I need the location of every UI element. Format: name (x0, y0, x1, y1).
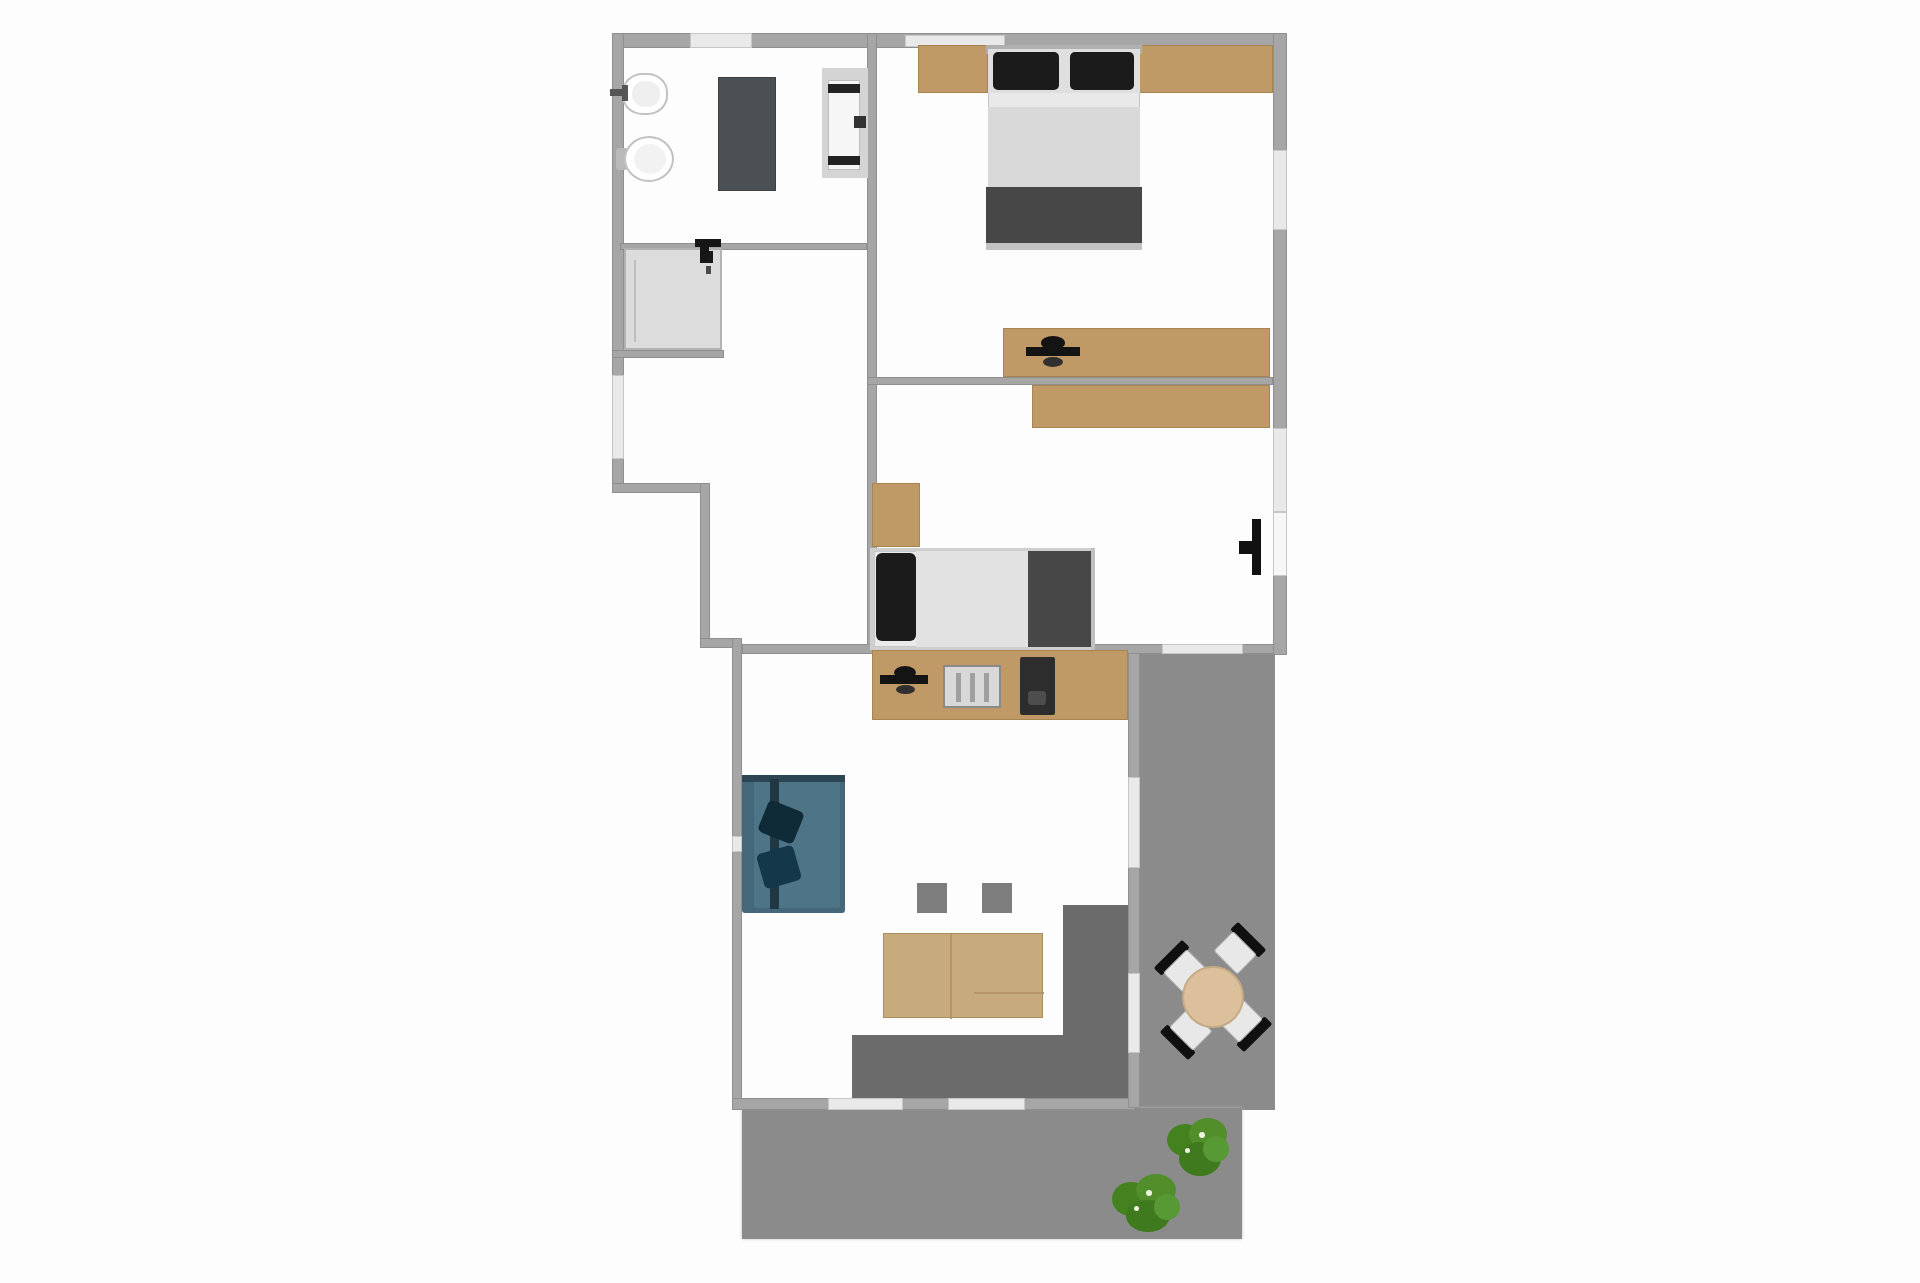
window-living-left (732, 836, 742, 852)
bedroom1-desk-chair (1026, 336, 1084, 368)
wall-step-h1 (612, 483, 710, 493)
bedroom1-wardrobe-left (918, 45, 988, 93)
plant-flower (1185, 1148, 1190, 1153)
chair-nub (1043, 357, 1063, 367)
bedroom1-shelf-right (1133, 45, 1273, 93)
door-bedroom2-right (1273, 512, 1287, 576)
handle-bar (695, 239, 721, 247)
table-seam-v (950, 934, 952, 1019)
bathroom-toilet (616, 134, 676, 184)
bed2-duvet (916, 551, 1028, 647)
bed-pillow-left (993, 52, 1059, 90)
door-panel-cap-top (828, 84, 860, 93)
window-top-1 (690, 33, 752, 48)
plant-blob (1154, 1194, 1180, 1220)
chair-seat (1041, 336, 1065, 350)
bed-pillow-right (1070, 52, 1134, 90)
bathroom-door-recess (822, 68, 868, 178)
sofa-crease (770, 779, 779, 909)
faucet-head (894, 666, 916, 679)
door-lever-nub (1239, 541, 1254, 554)
bed-duvet (988, 107, 1140, 189)
door-panel-cap-bottom (828, 156, 860, 165)
plant-flower (1199, 1132, 1205, 1138)
bedroom2-door-handle (1239, 519, 1263, 575)
plant-blob (1203, 1136, 1229, 1162)
plant-flower (1134, 1206, 1139, 1211)
shower-stall (624, 248, 722, 350)
double-bed (986, 45, 1142, 250)
bathroom-sink (610, 73, 670, 117)
sofa (742, 775, 845, 913)
coffee-table (883, 933, 1043, 1018)
wall-bath-bottom (612, 350, 724, 358)
single-bed (870, 548, 1095, 650)
sink-stripe-2 (970, 673, 975, 702)
toilet-seat (634, 144, 666, 174)
window-living-bottom-1 (828, 1098, 903, 1110)
bed-blanket (986, 187, 1142, 244)
bedroom2-shelf (1032, 385, 1270, 428)
shower-door-dot (706, 266, 711, 274)
faucet-nub (896, 685, 915, 694)
table-seam-h (974, 992, 1044, 994)
wall-step-v1 (700, 483, 710, 647)
patio-table (1182, 966, 1244, 1028)
bathroom-rug (718, 77, 776, 191)
window-living-bottom-2 (948, 1098, 1025, 1110)
kitchen-cooktop (1020, 657, 1055, 715)
bed-foot-frame (986, 243, 1142, 250)
shower-glass-line (634, 260, 636, 342)
window-left-hall (612, 375, 624, 459)
wall-living-bottom (732, 1098, 1135, 1110)
sink-faucet-stem (622, 85, 628, 101)
sofa-top-shadow (742, 775, 845, 782)
kitchen-sink-unit (943, 665, 1001, 708)
window-living-right-2 (1128, 973, 1140, 1053)
handle-stem (700, 247, 709, 261)
floor-cushion-2 (982, 883, 1012, 913)
sink-stripe-3 (984, 673, 989, 702)
sink-stripe-1 (956, 673, 961, 702)
plant-flower (1146, 1190, 1152, 1196)
door-panel-handle (854, 116, 866, 128)
bedroom2-wardrobe (872, 483, 920, 547)
wall-living-left (732, 638, 742, 1108)
bed2-pillow (876, 553, 916, 641)
cooktop-detail (1028, 691, 1046, 705)
plant-bush-1 (1163, 1116, 1231, 1180)
bathroom-door-handle (695, 239, 723, 263)
window-living-right-1 (1128, 777, 1140, 868)
window-terrace-top (1162, 644, 1243, 654)
sink-bowl (632, 81, 660, 107)
wall-bedroom1-bottom (867, 377, 1273, 385)
l-shaped-counter-horizontal (852, 1035, 1128, 1098)
window-bedroom2-right (1273, 428, 1287, 512)
kitchen-faucet (876, 660, 930, 696)
sofa-seat (754, 780, 840, 908)
window-bedroom1-right (1273, 150, 1287, 230)
floor-plan-canvas (0, 0, 1920, 1283)
bed2-blanket (1028, 551, 1091, 647)
plant-bush-2 (1106, 1172, 1182, 1234)
floor-cushion-1 (917, 883, 947, 913)
bed2-footboard (1091, 548, 1095, 650)
